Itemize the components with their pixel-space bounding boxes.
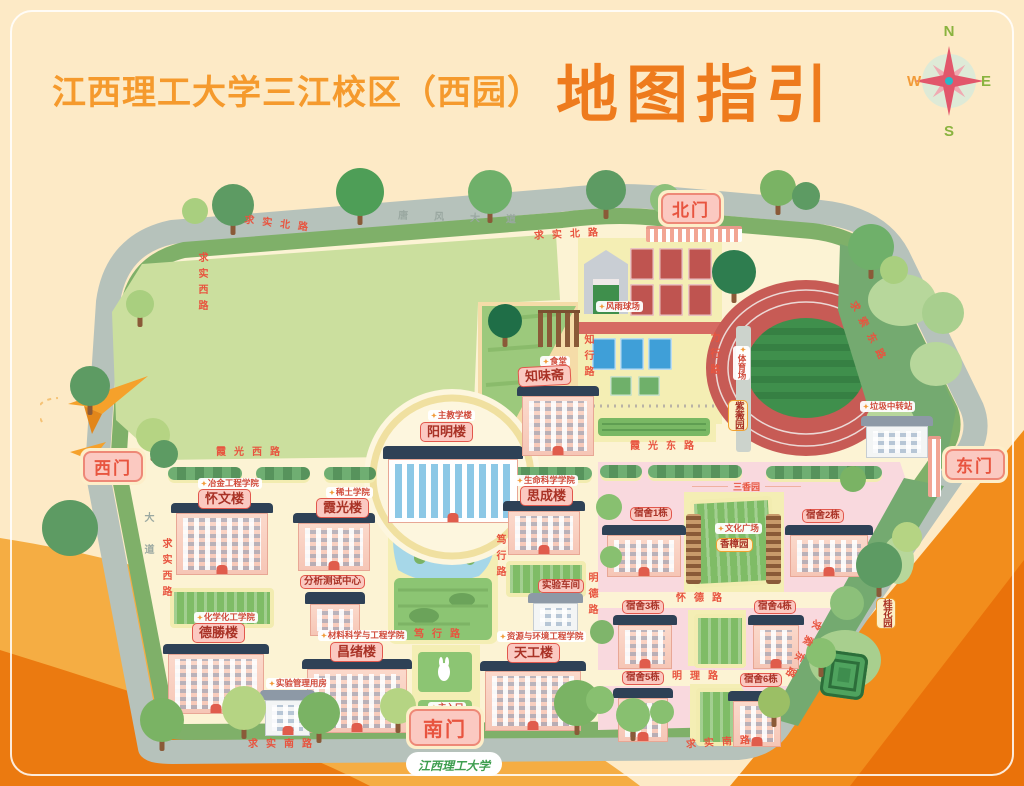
wooden-bench — [686, 514, 701, 584]
sicheng-label: 思成楼 — [520, 486, 573, 506]
tennis-court — [620, 338, 644, 370]
east-gate-structure — [928, 436, 941, 497]
basketball-court — [630, 248, 654, 280]
workshop-building — [533, 593, 578, 631]
dorm-3-building — [618, 615, 672, 669]
road-outer-avenue-side: 大道 — [142, 512, 152, 576]
desheng-label: 德勝楼 — [192, 623, 245, 643]
west-gate-label: 西门 — [80, 448, 146, 485]
dorm-2-label: 宿舍2栋 — [802, 509, 844, 523]
dorm-1-label: 宿舍1栋 — [630, 507, 672, 521]
yangming-label: 阳明楼 — [420, 422, 473, 442]
poster-title: 江西理工大学三江校区（西园） 地图指引 — [52, 44, 836, 134]
road-qiushi-west: 求实西路 — [196, 252, 206, 316]
road-zhixing: 知行路 — [582, 334, 592, 382]
materials-college-tag: 材料科学与工程学院 — [318, 630, 407, 641]
analysis-center-label: 分析测试中心 — [300, 575, 365, 589]
basketball-court — [659, 284, 683, 316]
life-science-college-tag: 生命科学学院 — [514, 475, 578, 486]
campus-name-title: 江西理工大学三江校区（西园） — [52, 65, 542, 114]
dorm-garden-plot — [694, 614, 746, 668]
east-gate-label: 东门 — [942, 446, 1008, 483]
hedge — [256, 467, 310, 480]
road-xiaguang-west: 霞光西路 — [216, 448, 288, 458]
xiaguang-building — [298, 513, 370, 571]
university-signature: 江西理工大学 — [418, 757, 490, 774]
east-gate-text: 东门 — [945, 449, 1005, 480]
metallurgy-college-tag: 冶金工程学院 — [198, 478, 262, 489]
rare-earth-college-tag: 稀土学院 — [326, 487, 373, 498]
osmanthus-garden-label: 桂花园 — [876, 598, 896, 629]
north-gate-text: 北门 — [661, 193, 721, 224]
huaiwen-building — [176, 503, 268, 575]
hedge — [648, 465, 742, 478]
dorm-6-label: 宿舍6栋 — [740, 673, 782, 687]
dorm-3-label: 宿舍3栋 — [622, 600, 664, 614]
stadium-tag: 体育场 — [733, 346, 750, 380]
west-gate-text: 西门 — [83, 451, 143, 482]
volleyball-court — [638, 376, 660, 396]
basketball-court — [688, 248, 712, 280]
garbage-station-tag: 垃圾中转站 — [860, 401, 915, 412]
workshop-label: 实验车间 — [538, 579, 584, 593]
road-qiushi-south: 求实南路 — [248, 740, 320, 750]
campus-map-poster: 江西理工大学三江校区（西园） 地图指引 N S E W 北门 西门 东门 南门 — [0, 0, 1024, 786]
sicheng-building — [508, 501, 580, 555]
ziwei-garden-label: 紫薇园 — [728, 400, 748, 431]
basketball-court — [659, 248, 683, 280]
changxu-label: 昌绪楼 — [330, 642, 383, 662]
dorm-4-label: 宿舍4栋 — [754, 600, 796, 614]
dorm-5-label: 宿舍5栋 — [622, 671, 664, 685]
north-gate-label: 北门 — [658, 190, 724, 227]
sanxiang-garden-tag: 三香园 — [692, 480, 801, 493]
resources-college-tag: 资源与环境工程学院 — [497, 631, 586, 642]
hedge — [324, 467, 376, 480]
road-duxing-2: 笃行路 — [414, 630, 468, 640]
road-huaide: 怀德路 — [676, 594, 730, 604]
garbage-station-building — [866, 416, 928, 458]
rainproof-court-tag: 风雨球场 — [596, 301, 643, 312]
culture-square-tag: 文化广场 — [715, 523, 762, 534]
road-duxing: 笃行路 — [494, 534, 504, 582]
road-xiaguang-east: 霞光东路 — [630, 442, 702, 452]
road-mingde: 明德路 — [586, 572, 596, 620]
stadium-grandstand — [736, 326, 751, 452]
zhiweizhai-canteen-building — [522, 386, 594, 456]
compass-rose: N S E W — [903, 22, 995, 145]
tennis-court — [648, 338, 672, 370]
volleyball-court — [610, 376, 632, 396]
lab-management-tag: 实验管理用房 — [266, 678, 330, 689]
xiaguang-label: 霞光楼 — [316, 498, 369, 518]
compass-w: W — [907, 73, 922, 90]
compass-s: S — [944, 123, 954, 140]
wooden-fence — [538, 310, 580, 347]
road-qiushi-west-2: 求实西路 — [160, 538, 170, 602]
chemistry-college-tag: 化学化工学院 — [194, 612, 258, 623]
zhiweizhai-label: 知味斋 — [518, 365, 572, 388]
north-gate-structure — [646, 226, 742, 242]
south-gate-text: 南门 — [409, 709, 481, 746]
hedge — [600, 465, 642, 478]
huaiwen-label: 怀文楼 — [198, 489, 251, 509]
compass-e: E — [981, 73, 991, 90]
yangming-building — [388, 446, 518, 523]
tiangong-label: 天工楼 — [507, 643, 560, 663]
main-teaching-tag: 主教学楼 — [428, 410, 475, 421]
tennis-court — [592, 338, 616, 370]
wooden-bench — [766, 514, 781, 584]
road-mingli: 明理路 — [672, 672, 726, 682]
camphor-garden-label: 香樟园 — [716, 538, 753, 552]
map-guide-title: 地图指引 — [556, 44, 836, 134]
road-lixing: 力行路 — [708, 332, 718, 380]
compass-n: N — [944, 23, 955, 40]
basketball-court — [688, 284, 712, 316]
south-gate-label: 南门 — [406, 706, 484, 749]
